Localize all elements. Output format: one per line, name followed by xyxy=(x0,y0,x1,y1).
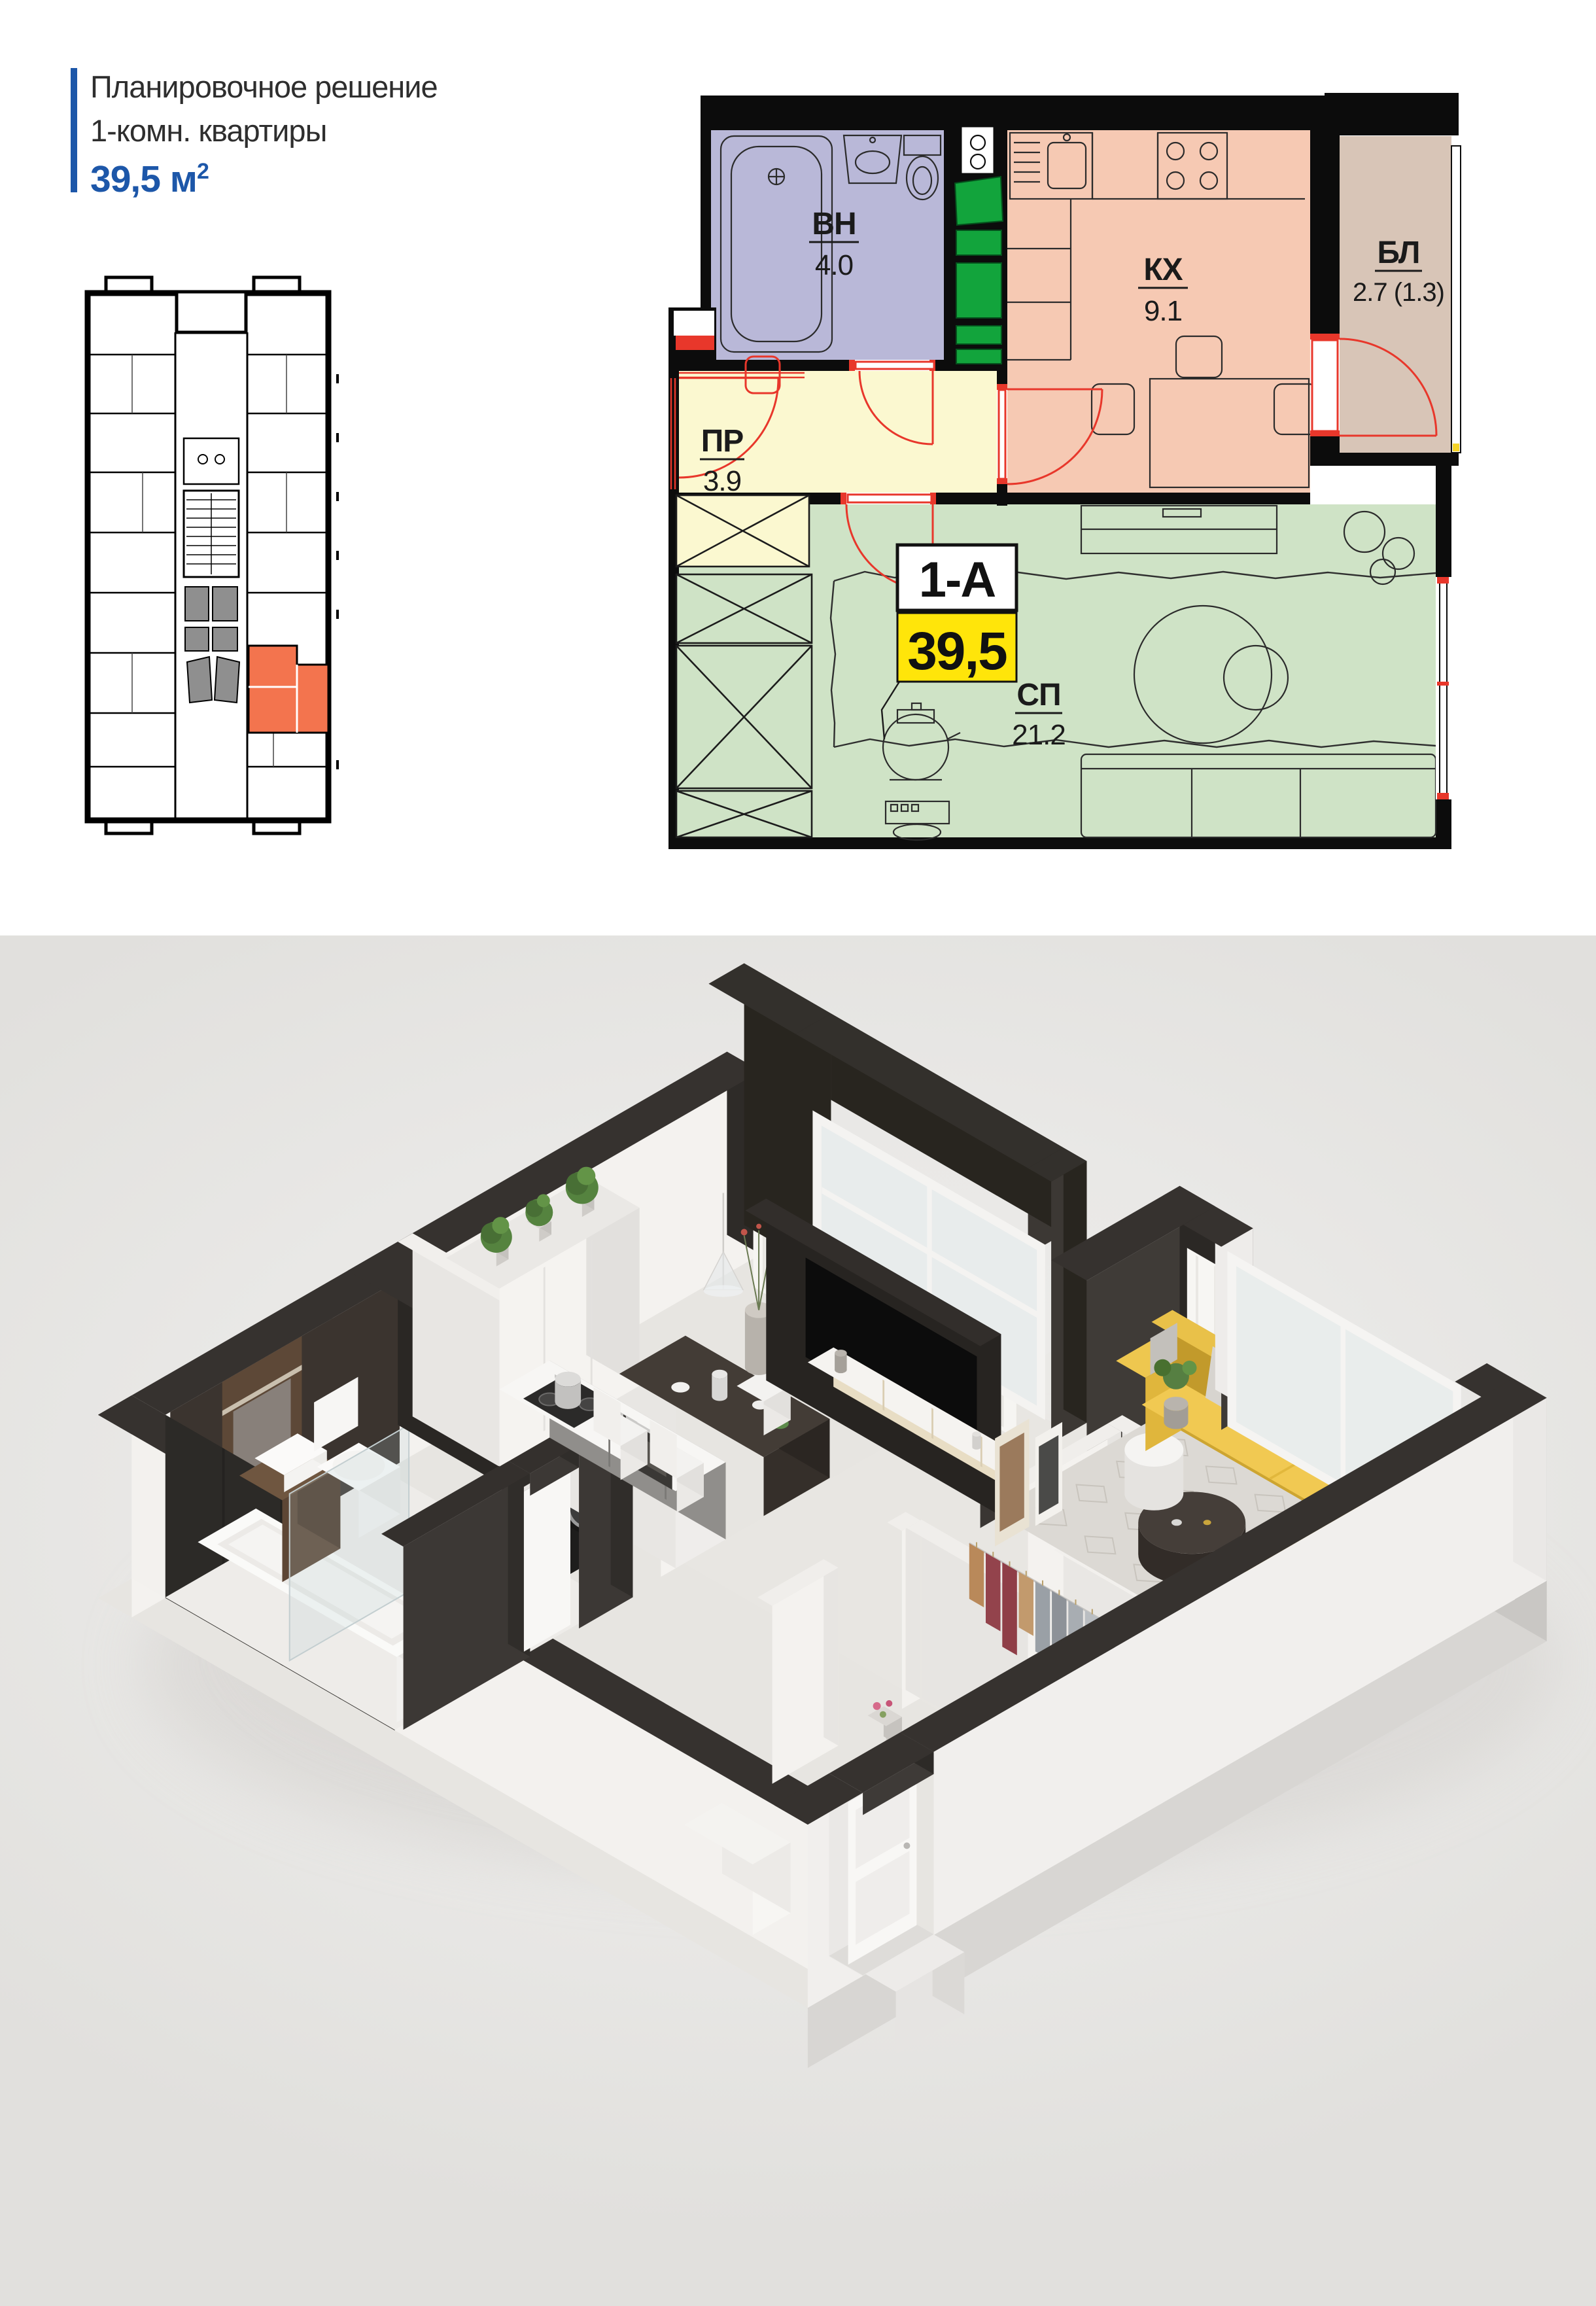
svg-text:БЛ: БЛ xyxy=(1378,236,1420,270)
accent-bar xyxy=(71,68,77,192)
highlighted-unit xyxy=(249,646,328,733)
poster-page: Планировочное решение 1-комн. квартиры 3… xyxy=(0,0,1596,2306)
iso-apartment xyxy=(98,964,1555,2069)
svg-text:9.1: 9.1 xyxy=(1144,295,1182,327)
svg-text:КХ: КХ xyxy=(1143,253,1183,287)
isometric-render xyxy=(0,935,1596,2306)
total-area: 39,5 м2 xyxy=(90,158,438,201)
room-bathroom xyxy=(711,130,944,360)
building-plan xyxy=(77,263,347,843)
isometric-scene xyxy=(0,935,1596,2306)
storage-boxes xyxy=(676,495,812,837)
svg-text:ВН: ВН xyxy=(812,207,856,241)
title-line2: 1-комн. квартиры xyxy=(90,109,438,152)
unit-area: 39,5 xyxy=(907,621,1007,681)
svg-text:4.0: 4.0 xyxy=(815,249,853,281)
apartment-plan: ВН 4.0 КХ 9.1 БЛ 2.7 (1.3) ПР 3.9 СП xyxy=(648,85,1465,850)
closet-hallway xyxy=(676,495,809,567)
svg-text:3.9: 3.9 xyxy=(703,465,741,497)
wardrobe-column xyxy=(676,574,812,837)
unit-number: 1-А xyxy=(919,552,996,608)
svg-text:ПР: ПР xyxy=(701,424,744,459)
title-line1: Планировочное решение xyxy=(90,65,438,109)
window-ticks xyxy=(85,290,339,820)
svg-text:21.2: 21.2 xyxy=(1012,719,1066,751)
svg-text:2.7 (1.3): 2.7 (1.3) xyxy=(1353,278,1444,307)
svg-text:СП: СП xyxy=(1016,678,1060,712)
header: Планировочное решение 1-комн. квартиры 3… xyxy=(90,65,438,201)
